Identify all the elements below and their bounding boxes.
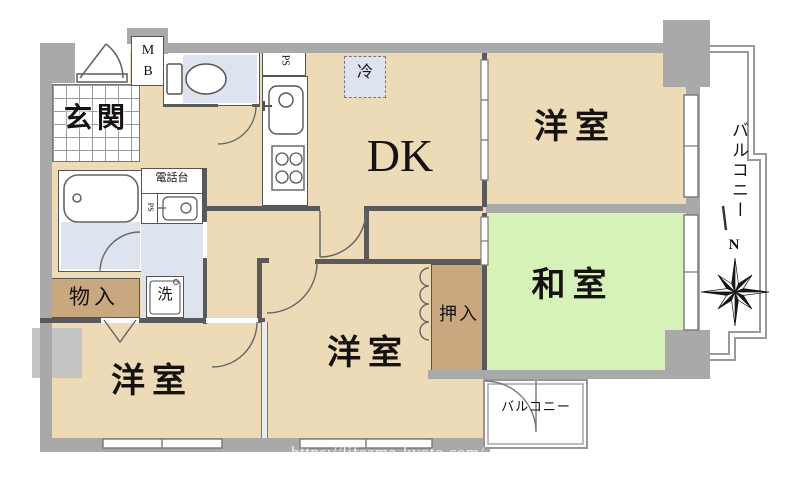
linework-layer: [0, 0, 800, 482]
kitchen-sink-icon: [264, 86, 303, 134]
window-right-westroom: [684, 95, 698, 197]
center-room-door-arc: [267, 263, 317, 313]
meter-box-label: M B: [137, 40, 159, 82]
entrance-label: 玄関: [52, 104, 142, 133]
dk-door: [320, 211, 366, 257]
balcony-right-label: バルコニー: [707, 96, 747, 246]
pipe-space-utility-label: PS: [146, 195, 154, 219]
western-room-center-label: 洋室: [288, 336, 448, 372]
window-right-japanese: [684, 215, 698, 330]
left-room-door-arc: [212, 322, 257, 367]
watermark: https://lifeama-kyoto.com/: [291, 443, 485, 463]
washbasin-icon: [158, 197, 197, 220]
toilet-door-arc: [218, 106, 256, 144]
washer-label: 洗: [146, 288, 184, 304]
bathroom-door-arc: [100, 232, 140, 272]
entrance-door: [77, 44, 127, 82]
pipe-space-kitchen-label: PS: [279, 46, 290, 74]
toilet-icon: [167, 64, 226, 94]
refrigerator-label: 冷: [344, 65, 386, 82]
sliding-door-dk-westroom: [481, 60, 488, 180]
sliding-door-japanese: [481, 217, 488, 265]
bathtub-icon: [64, 175, 138, 222]
western-room-top-label: 洋室: [495, 110, 655, 146]
phone-stand-label: 電話台: [141, 173, 203, 185]
western-room-left-label: 洋室: [72, 364, 232, 400]
storage-bifold-door: [104, 320, 136, 342]
oshiire-accordion-door: [420, 268, 429, 340]
floor-plan: 玄関 DK 洋室 和室 洋室 洋室 押入 物入 洗 冷 電話台 M B PS P…: [0, 0, 800, 482]
window-bottom-left: [103, 439, 222, 448]
oshiire-label: 押入: [431, 305, 487, 324]
stove-icon: [272, 146, 304, 190]
compass-north-label: N: [721, 238, 747, 254]
balcony-bottom-label: バルコニー: [490, 400, 582, 414]
japanese-room-label: 和室: [490, 268, 655, 304]
dk-label: DK: [340, 132, 460, 180]
storage-label: 物入: [48, 286, 140, 308]
